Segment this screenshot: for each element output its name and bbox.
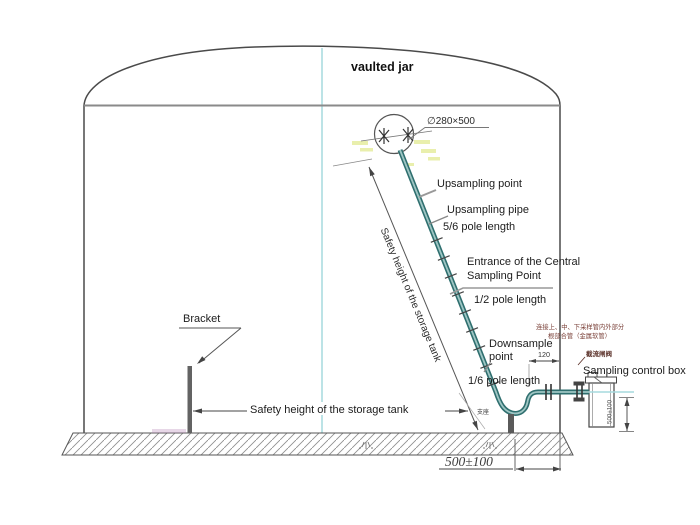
safety-height-horizontal-label: Safety height of the storage tank (250, 404, 409, 416)
downsample-label-line2: point (489, 351, 513, 363)
ground-foundation (62, 429, 573, 455)
pipe-support-post (508, 414, 514, 433)
pole-1-2-label: 1/2 pole length (474, 294, 546, 306)
manhole-dim-label: ∅280×500 (427, 116, 475, 127)
box-height-dim-label: 500±100 (607, 399, 614, 424)
entrance-label-line2: Sampling Point (467, 270, 541, 282)
manhole-nozzle (361, 115, 432, 154)
cn-note-line2: 根部合管（金属软管） (548, 331, 611, 340)
safety-height-diagonal-label: Safety height of the storage tank (378, 226, 444, 364)
pole-5-6-label: 5/6 pole length (443, 221, 515, 233)
cn-valve-label: 截流闸阀 (586, 349, 613, 358)
cn-valve-leader (578, 357, 585, 365)
support-label-cn: 支座 (477, 408, 489, 416)
bracket-leader (179, 328, 241, 364)
upsampling-point-label: Upsampling point (437, 178, 522, 190)
cn-note-line1: 连接上、中、下采样管内外部分 (536, 322, 625, 331)
box-height-dim (619, 398, 634, 432)
manhole-dim-leader (408, 128, 489, 141)
downsample-label-line1: Downsample (489, 338, 553, 350)
wall-offset-dim-label: 120 (538, 350, 550, 359)
entrance-label-line1: Entrance of the Central (467, 256, 580, 268)
pole-1-6-label: 1/6 pole length (468, 375, 540, 387)
sampling-control-box-label: Sampling control box (583, 365, 686, 377)
ground-offset-dim-label: 500±100 (445, 454, 493, 469)
bracket-label: Bracket (183, 313, 220, 325)
upsampling-point-leader (419, 190, 436, 197)
bracket-post (188, 366, 193, 433)
tank-title: vaulted jar (351, 60, 414, 74)
base-smudge (152, 429, 186, 433)
upsampling-pipe-label: Upsampling pipe (447, 204, 529, 216)
drawing-canvas: Bracket Safety height of the storage tan… (0, 0, 700, 525)
